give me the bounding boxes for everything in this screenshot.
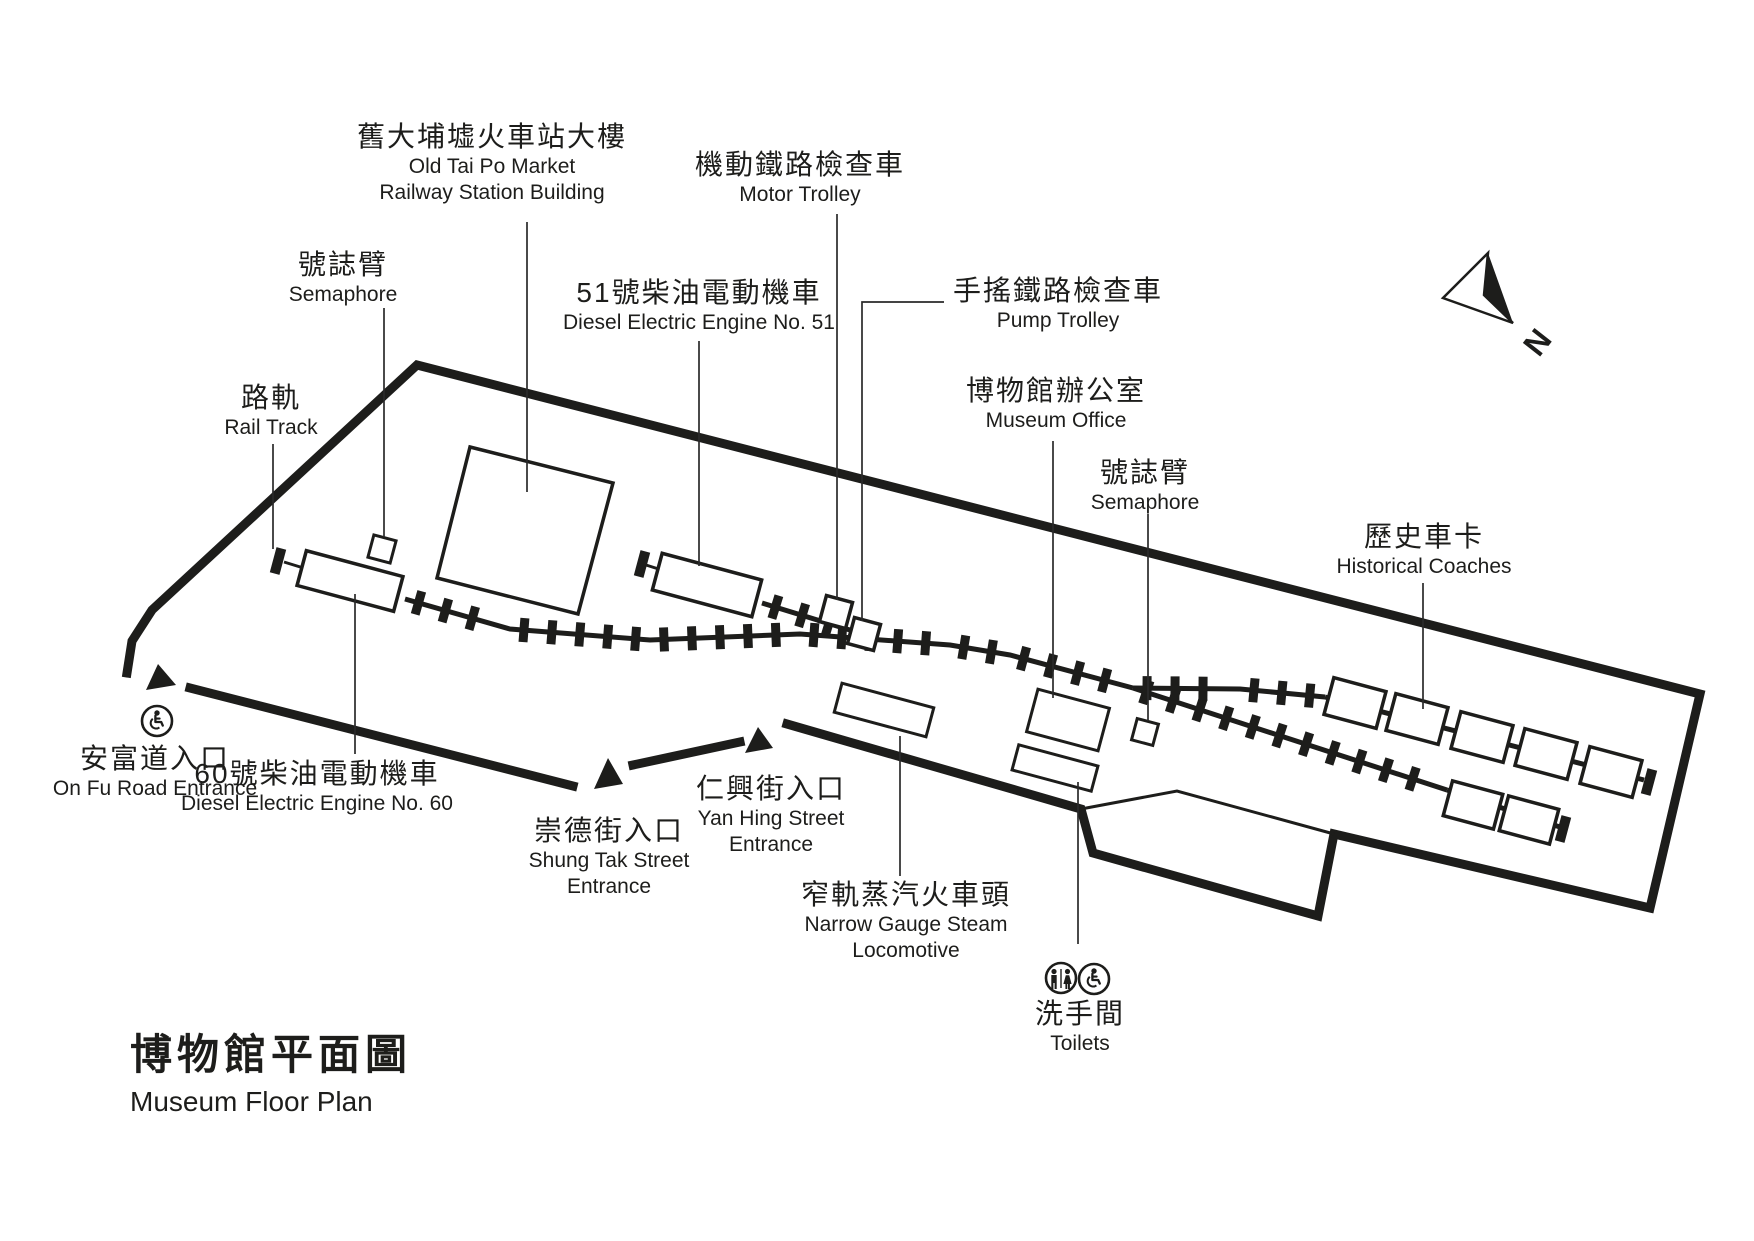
rail-sleeper [892, 629, 903, 654]
label-station-building-en1: Old Tai Po Market [357, 154, 627, 180]
rail-sleeper [1248, 678, 1259, 703]
buffer-stop [270, 547, 286, 575]
label-rail-track: 路軌 Rail Track [224, 381, 317, 441]
rail-sleeper [920, 631, 931, 656]
rail-sleeper [546, 620, 557, 645]
toilets-wheelchair-icon [1079, 964, 1109, 994]
rail-sleeper [743, 624, 753, 648]
entrance-triangle-yan-hing [745, 727, 773, 753]
entrance-triangle-shung-tak [594, 758, 623, 789]
label-engine-51: 51號柴油電動機車 Diesel Electric Engine No. 51 [563, 276, 835, 336]
label-semaphore-east: 號誌臂 Semaphore [1091, 456, 1200, 516]
page-title: 博物館平面圖 Museum Floor Plan [130, 1030, 412, 1120]
label-shung-tak-street-entrance: 崇德街入口 Shung Tak Street Entrance [529, 814, 690, 900]
north-arrow-icon: N [1443, 253, 1559, 362]
rail-sleeper [715, 625, 725, 649]
historical-coach-shape [1451, 712, 1513, 763]
label-museum-office: 博物館辦公室 Museum Office [966, 374, 1146, 434]
label-historical-coaches: 歷史車卡 Historical Coaches [1336, 520, 1511, 580]
rail-sleeper [1170, 676, 1179, 700]
semaphore-west-shape [368, 535, 396, 563]
rail-sleeper [659, 627, 669, 651]
historical-coach-shape [1443, 781, 1503, 829]
motor-trolley-shape [819, 595, 852, 628]
label-pump-trolley: 手搖鐵路檢查車 Pump Trolley [953, 274, 1163, 334]
rail-sleeper [1276, 681, 1287, 706]
toilets-male-female-icon [1046, 963, 1076, 993]
label-narrow-gauge-steam-locomotive: 窄軌蒸汽火車頭 Narrow Gauge Steam Locomotive [801, 878, 1011, 964]
engine-51-shape [652, 553, 761, 616]
label-engine-60: 60號柴油電動機車 Diesel Electric Engine No. 60 [181, 757, 453, 817]
rail-sleeper [957, 635, 970, 660]
exhibit-shape [1012, 745, 1098, 791]
rail-sleeper [809, 623, 820, 648]
semaphore-east-shape [1132, 719, 1159, 746]
rail-sleeper [687, 626, 697, 650]
label-station-building: 舊大埔墟火車站大樓 Old Tai Po Market Railway Stat… [357, 120, 627, 206]
label-semaphore-west: 號誌臂 Semaphore [289, 248, 398, 308]
rail-line [405, 599, 1133, 688]
label-toilets: 洗手間 Toilets [1035, 997, 1125, 1057]
label-station-building-cjk: 舊大埔墟火車站大樓 [357, 120, 627, 154]
label-station-building-en2: Railway Station Building [357, 180, 627, 206]
museum-floor-plan: N 舊大埔墟火車站大樓 Old Tai Po [0, 0, 1754, 1241]
rail-sleeper [630, 627, 641, 652]
label-motor-trolley: 機動鐵路檢查車 Motor Trolley [695, 148, 905, 208]
page-title-en: Museum Floor Plan [130, 1084, 412, 1120]
page-title-cjk: 博物館平面圖 [130, 1030, 412, 1080]
label-yan-hing-street-entrance: 仁興街入口 Yan Hing Street Entrance [696, 772, 846, 858]
rail-sleeper [771, 623, 781, 647]
historical-coach-shape [1499, 796, 1559, 844]
station-building-shape [437, 447, 613, 614]
pump-trolley-shape [847, 617, 880, 650]
on-fu-wheelchair-icon [142, 706, 172, 736]
rail-sleeper [985, 639, 998, 664]
rail-sleeper [1198, 677, 1207, 701]
historical-coach-shape [1386, 694, 1448, 745]
rail-sleeper [1142, 676, 1151, 700]
boundary-wall-between-entrances [633, 742, 740, 765]
rail-sleeper [1304, 683, 1315, 708]
toilets-building-outline [1081, 791, 1334, 834]
leader-pump-trolley [862, 302, 944, 621]
rail-sleeper [574, 622, 585, 647]
rail-sleeper [602, 624, 613, 649]
rail-sleeper [519, 618, 530, 643]
historical-coach-shape [1324, 678, 1386, 729]
narrow-gauge-locomotive-shape [834, 683, 934, 737]
entrance-triangle-on-fu [146, 664, 176, 690]
museum-office-shape [1027, 689, 1110, 751]
historical-coach-shape [1580, 747, 1642, 798]
historical-coach-shape [1515, 729, 1577, 780]
rail-lines [284, 562, 1644, 828]
north-label: N [1516, 322, 1559, 362]
